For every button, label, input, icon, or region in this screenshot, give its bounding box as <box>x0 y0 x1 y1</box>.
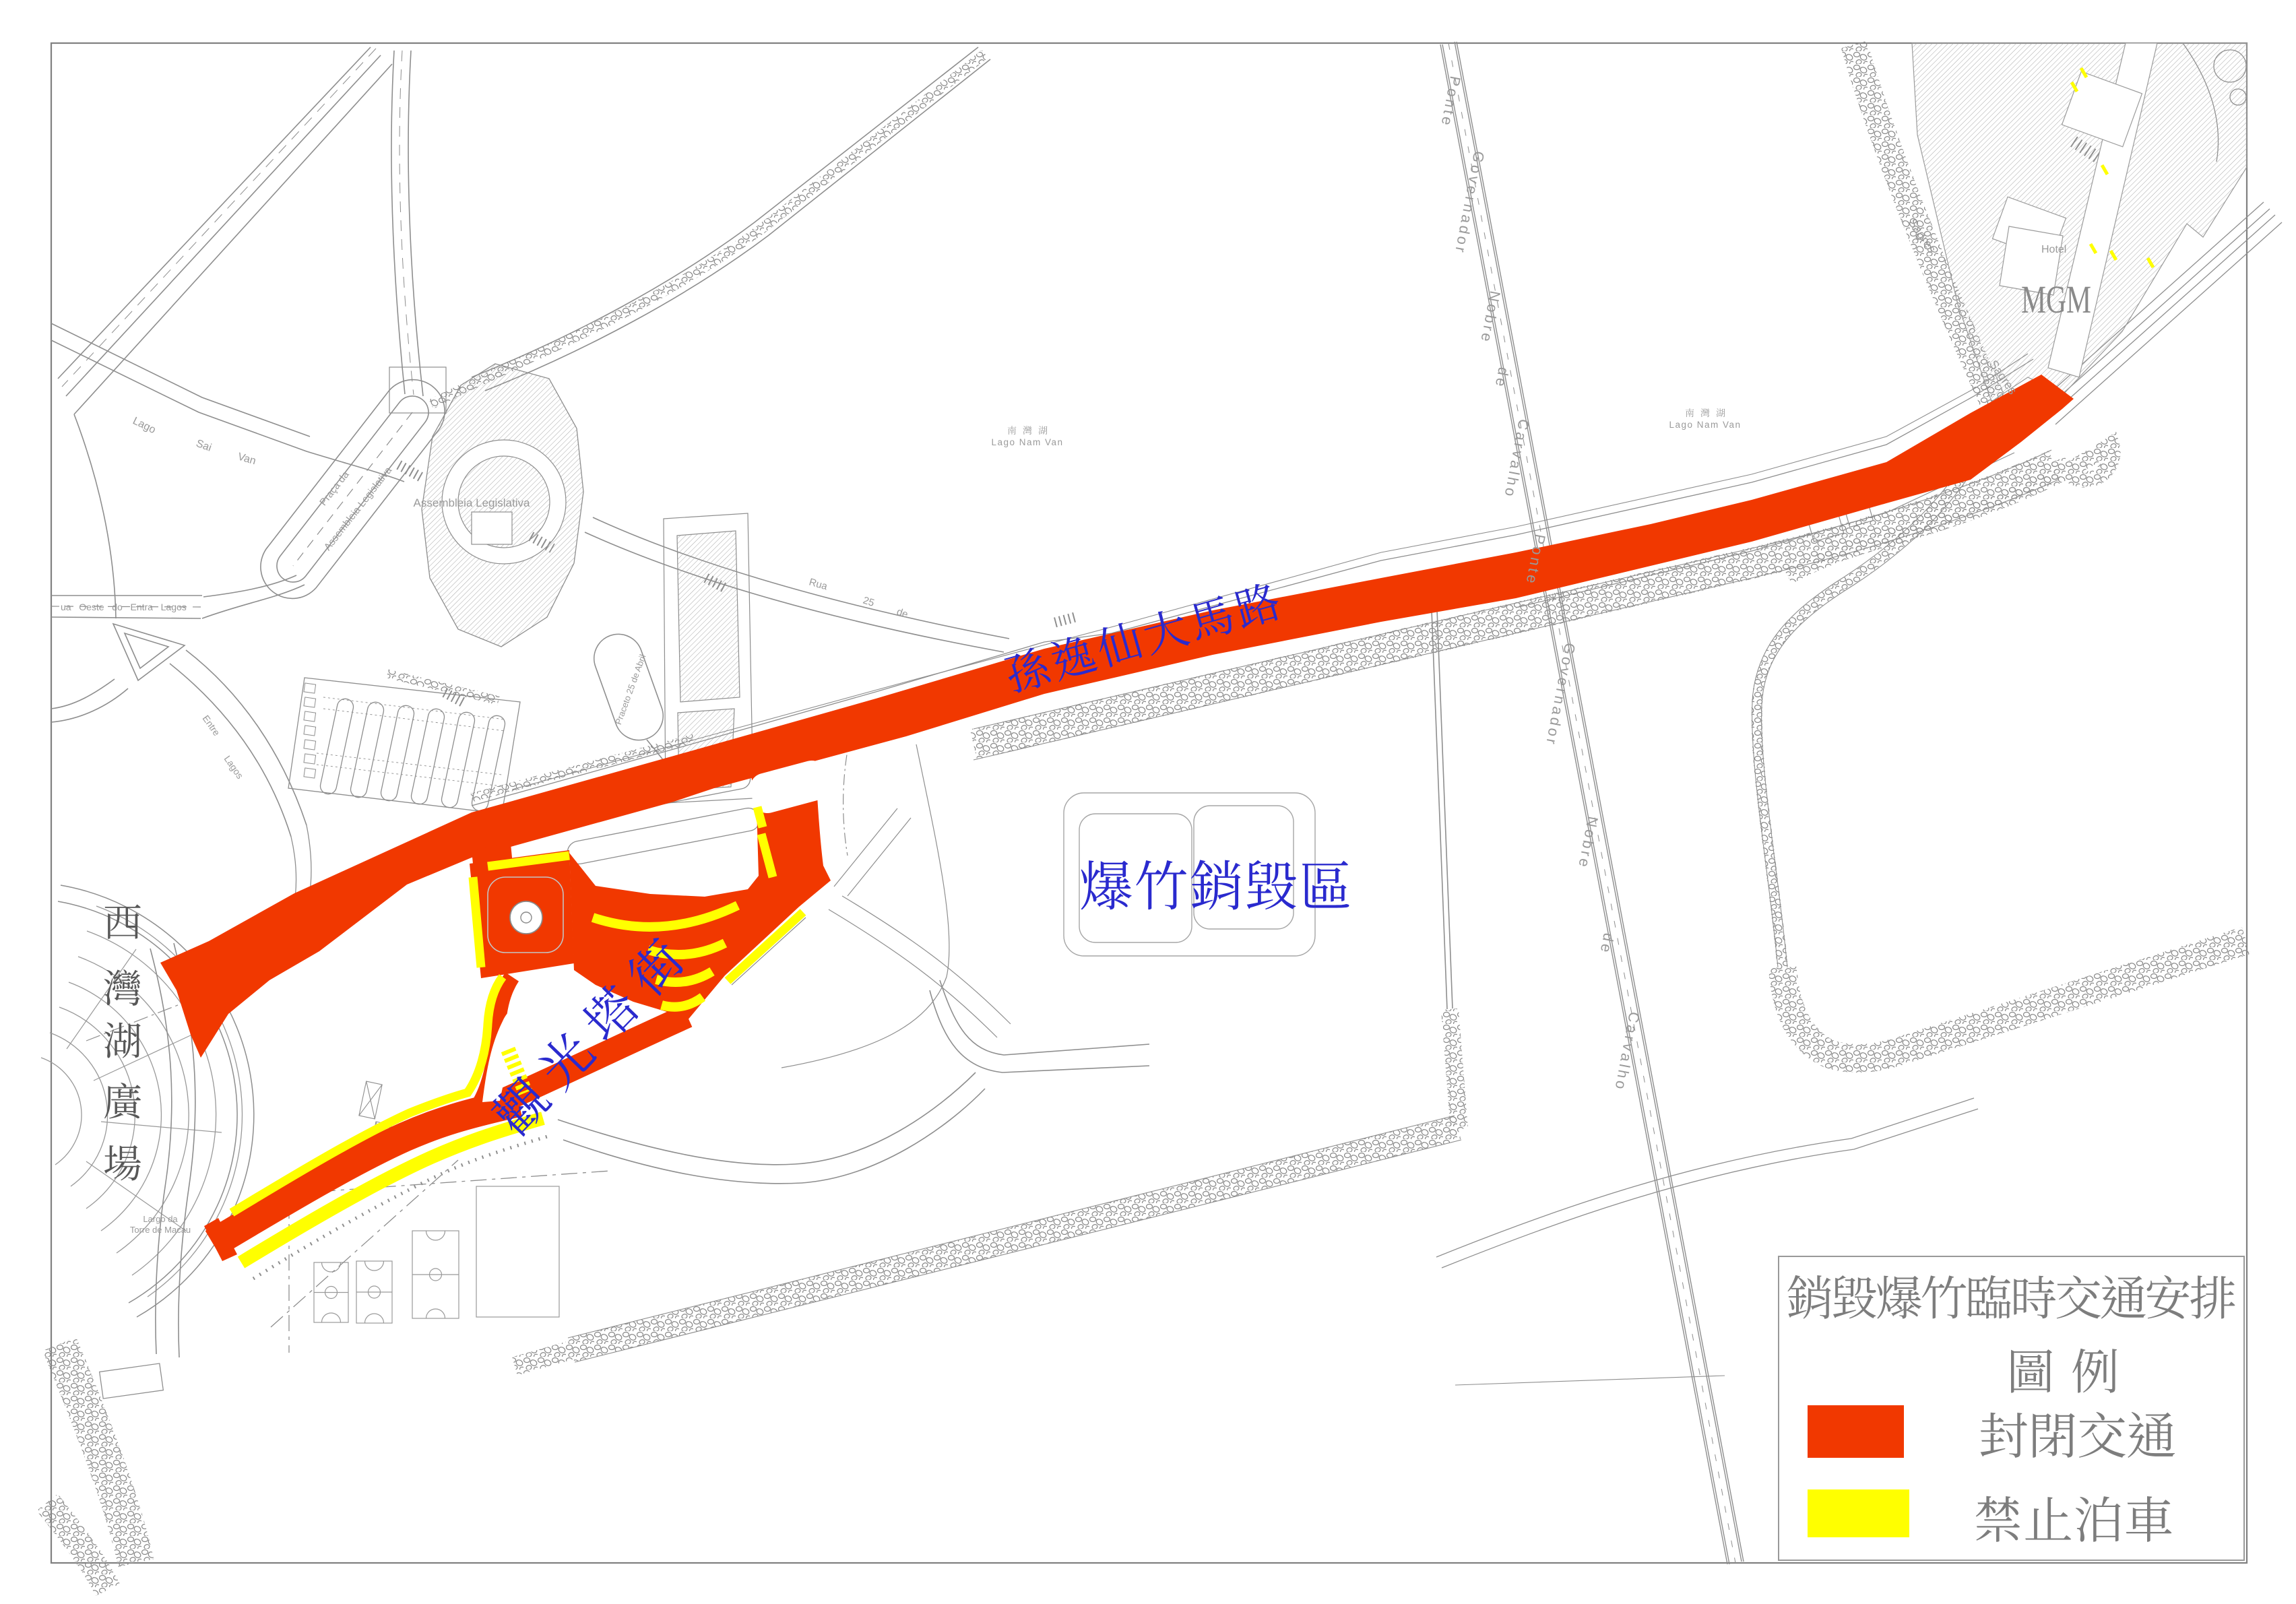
svg-text:MGM: MGM <box>2021 278 2091 321</box>
svg-text:Lago Nam Van: Lago Nam Van <box>1669 420 1741 430</box>
svg-text:ua Oeste do Entra Lago: ua Oeste do Entra Lagos <box>61 602 187 612</box>
svg-text:Hotel: Hotel <box>2041 244 2066 255</box>
svg-text:Largo da: Largo da <box>143 1214 178 1224</box>
svg-text:Assembleia Legislativa: Assembleia Legislativa <box>414 496 530 509</box>
svg-text:Lago Nam Van: Lago Nam Van <box>991 437 1063 447</box>
svg-text:Torre de Macau: Torre de Macau <box>130 1225 191 1235</box>
